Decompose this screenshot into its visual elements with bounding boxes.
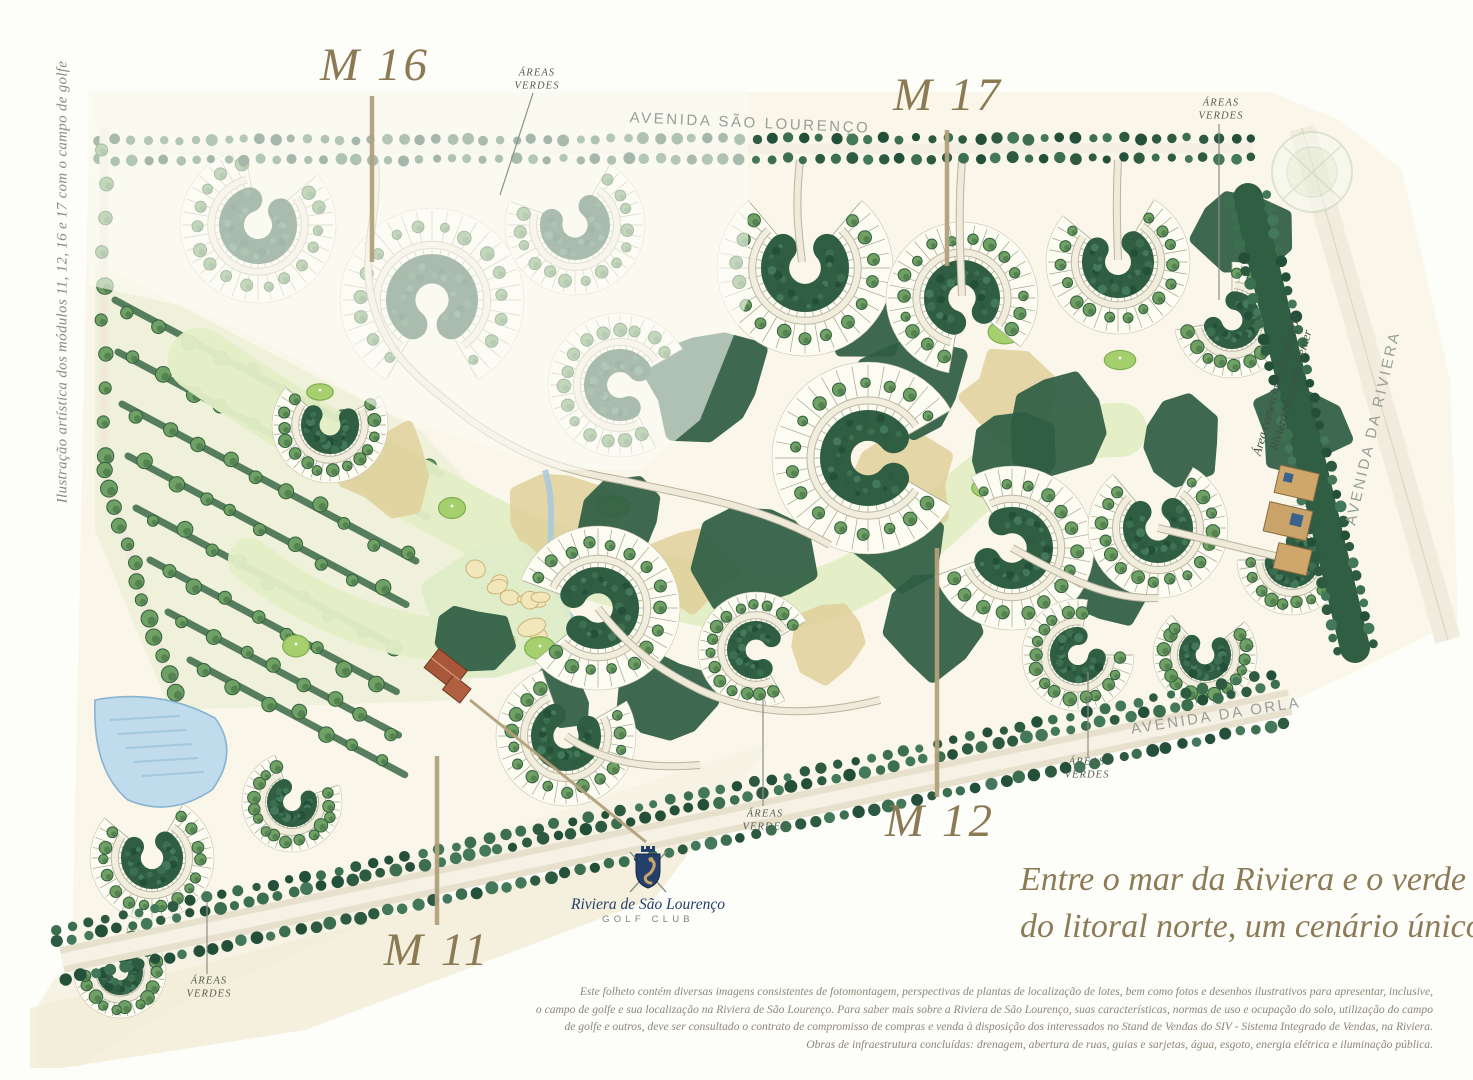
- module-label-m12: M 12: [885, 794, 995, 848]
- green-areas-line2: VERDES: [1198, 110, 1243, 123]
- green-areas-label: ÁREAS VERDES: [186, 976, 231, 1001]
- legal-disclaimer: Este folheto contém diversas imagens con…: [536, 983, 1433, 1053]
- marketing-tagline: Entre o mar da Riviera e o verde do lito…: [1020, 856, 1473, 950]
- green-areas-line1: ÁREAS: [514, 68, 559, 81]
- roundabout: [1272, 132, 1352, 212]
- module-label-m17: M 17: [893, 68, 1003, 122]
- tagline-line1: Entre o mar da Riviera e o verde: [1020, 856, 1473, 903]
- legal-line3: de golfe e outros, deve ser consultado o…: [536, 1018, 1433, 1036]
- legal-line4: Obras de infraestrutura concluídas: dren…: [536, 1036, 1433, 1054]
- brochure-page: Ilustração artística dos módulos 11, 12,…: [0, 0, 1473, 1080]
- golf-club-subtitle: GOLF CLUB: [602, 914, 694, 925]
- green-areas-label: ÁREAS VERDES: [1064, 757, 1109, 782]
- golf-club-name: Riviera de São Lourenço: [571, 896, 725, 914]
- module-label-m16: M 16: [320, 38, 430, 92]
- module-label-m11: M 11: [384, 923, 490, 977]
- green-areas-line2: VERDES: [514, 80, 559, 93]
- legal-line1: Este folheto contém diversas imagens con…: [536, 983, 1433, 1001]
- green-areas-line2: VERDES: [742, 821, 787, 834]
- green-areas-line1: ÁREAS: [1198, 98, 1243, 111]
- green-areas-line1: ÁREAS: [742, 809, 787, 822]
- green-areas-label: ÁREAS VERDES: [514, 68, 559, 93]
- green-areas-line2: VERDES: [1064, 769, 1109, 782]
- artistic-caption: Ilustração artística dos módulos 11, 12,…: [55, 61, 72, 503]
- green-areas-label: ÁREAS VERDES: [1198, 98, 1243, 123]
- green-areas-line1: ÁREAS: [186, 976, 231, 989]
- green-areas-label: ÁREAS VERDES: [742, 809, 787, 834]
- golf-club-crest-icon: [627, 842, 669, 896]
- green-areas-line1: ÁREAS: [1064, 757, 1109, 770]
- green-areas-line2: VERDES: [186, 988, 231, 1001]
- tagline-line2: do litoral norte, um cenário único.: [1020, 903, 1473, 950]
- legal-line2: o campo de golfe e sua localização na Ri…: [536, 1001, 1433, 1019]
